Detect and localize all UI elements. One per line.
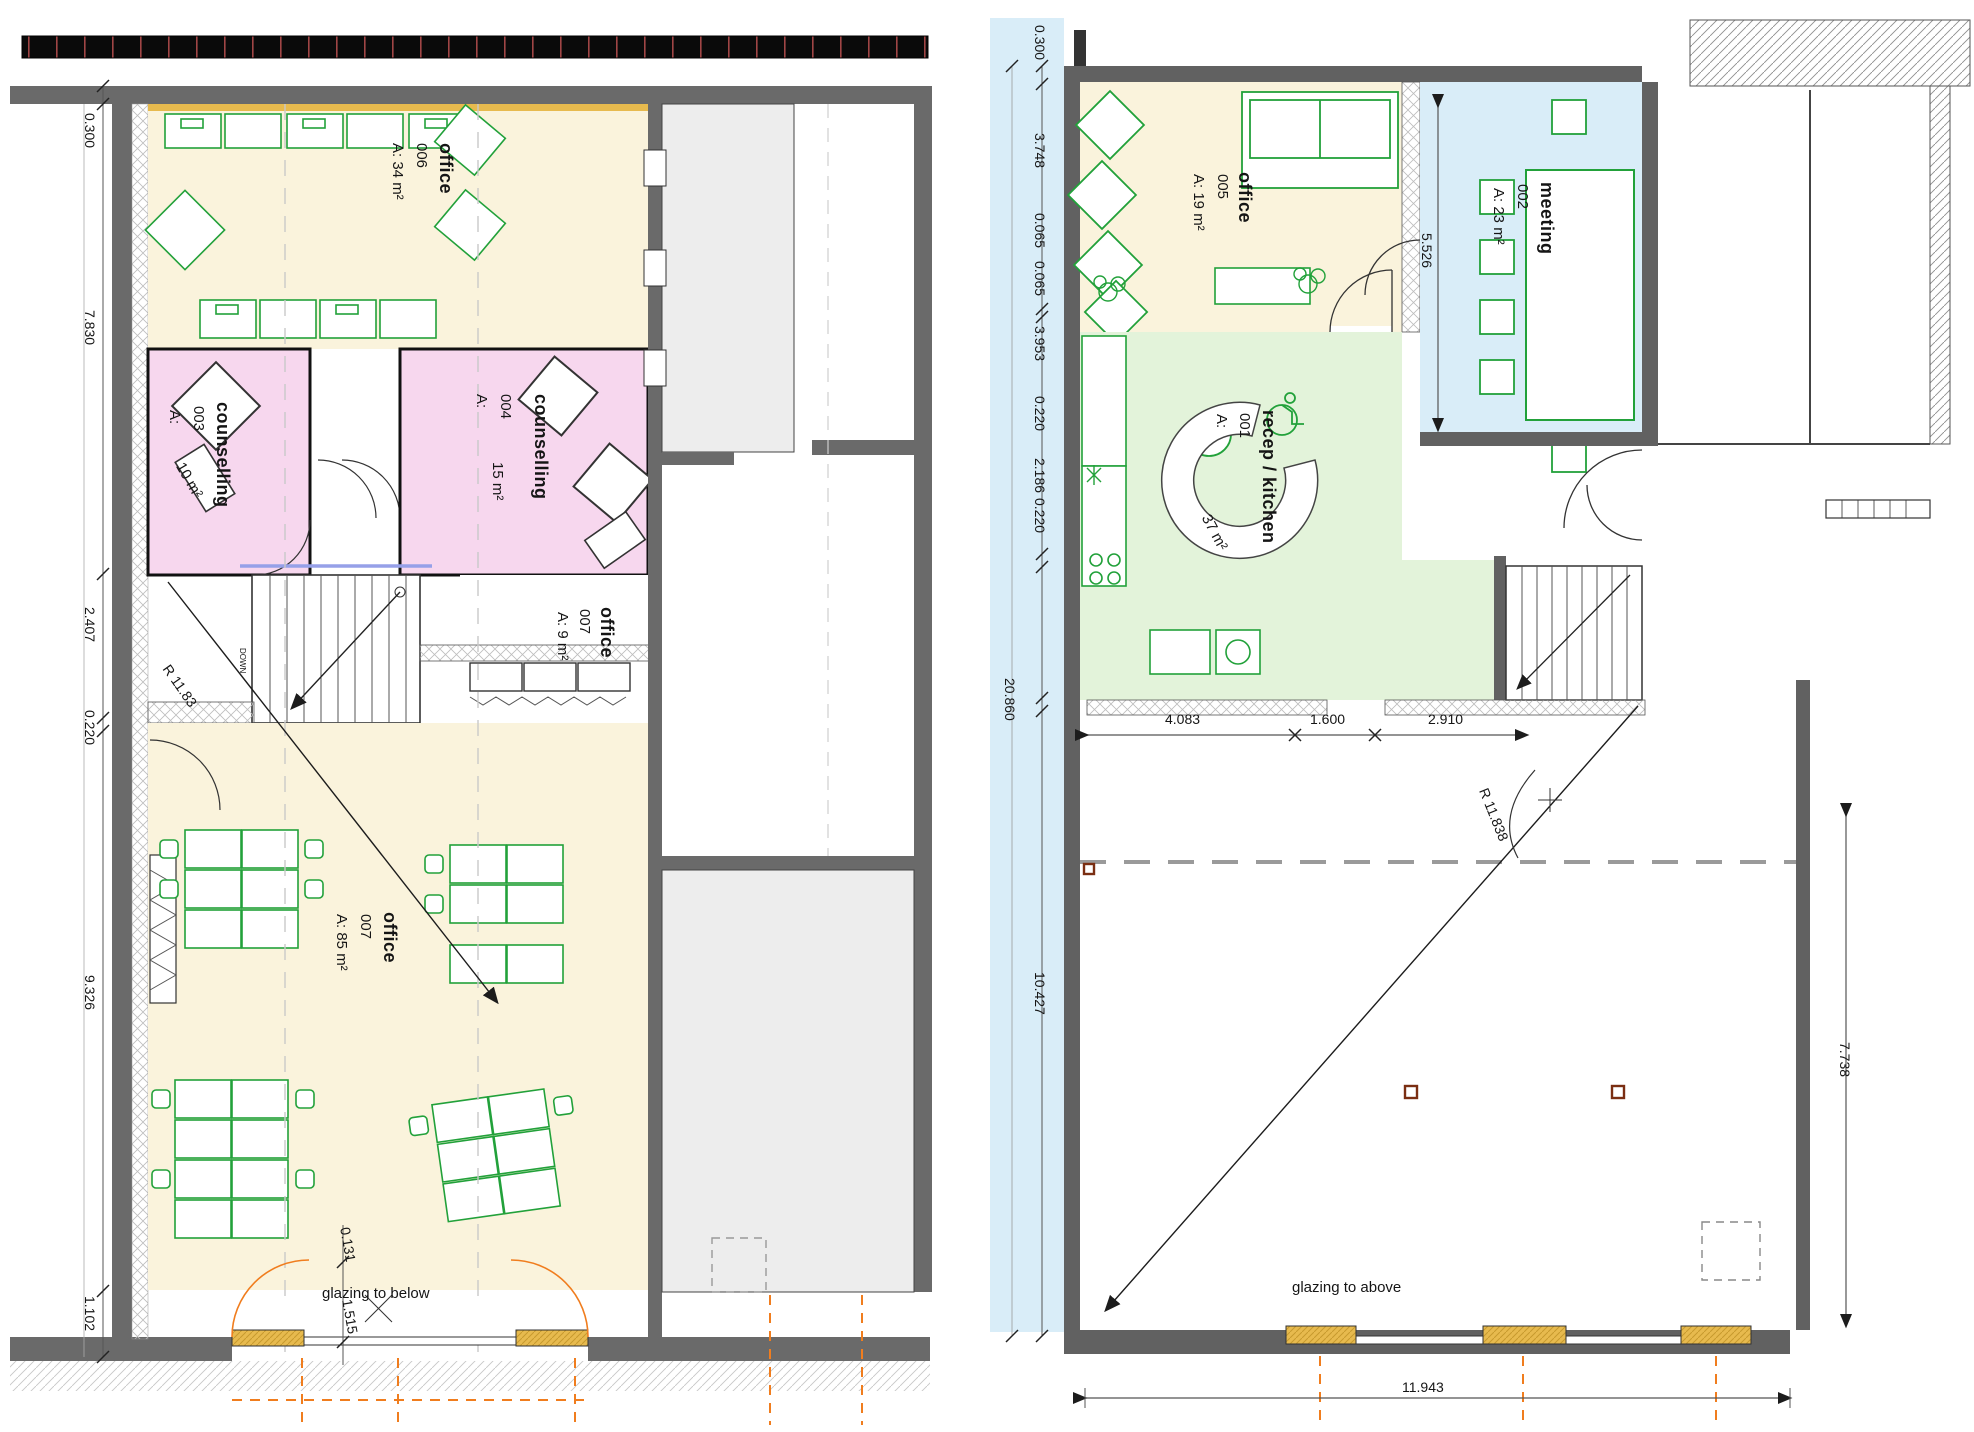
o5-name-label: office <box>1236 172 1254 223</box>
room-counselling-004 <box>400 349 652 575</box>
room-meeting-002 <box>1365 82 1658 472</box>
o6-num-label: 006 <box>414 143 429 168</box>
dim-0065b-label: 0.065 <box>1033 261 1047 296</box>
lower-floor-drawing <box>990 0 1974 1432</box>
m2-area-label: A: 23 m² <box>1491 188 1506 245</box>
bottom-glazing <box>1286 1326 1751 1428</box>
c3-name-label: counselling <box>214 402 232 508</box>
o7-num-label: 007 <box>358 914 373 939</box>
o6-area-label: A: 34 m² <box>390 143 405 200</box>
dim-3953-label: 3.953 <box>1033 326 1047 361</box>
o5-num-label: 005 <box>1215 174 1230 199</box>
c3-a-label: A: <box>167 410 182 424</box>
dim-4083-label: 4.083 <box>1165 712 1200 726</box>
dim-0300-label: 0.300 <box>1033 25 1047 60</box>
dim-0220b-label: 0.220 <box>1033 498 1047 533</box>
rk-a-label: A: <box>1214 414 1229 428</box>
rk-name-label: recep / kitchen <box>1260 410 1278 544</box>
upper-floor-drawing <box>0 0 985 1432</box>
o5-area-label: A: 19 m² <box>1191 174 1206 231</box>
o7-area-label: A: 85 m² <box>334 914 349 971</box>
c4-area-label: 15 m² <box>490 462 505 500</box>
o7s-name-label: office <box>598 607 616 658</box>
glazing-label: glazing to below <box>322 1286 430 1301</box>
dim-0220a-label: 0.220 <box>1033 396 1047 431</box>
dim-20860-label: 20.860 <box>1003 678 1017 721</box>
c4-a-label: A: <box>474 394 489 408</box>
m2-name-label: meeting <box>1538 182 1556 255</box>
c3-num-label: 003 <box>191 406 206 431</box>
down-label: DOWN <box>238 648 246 673</box>
dim-9326-label: 9.326 <box>83 975 97 1010</box>
section-band-top <box>22 36 928 58</box>
dim-2186-label: 2.186 <box>1033 458 1047 493</box>
dim-1600-label: 1.600 <box>1310 712 1345 726</box>
dim-2910-label: 2.910 <box>1428 712 1463 726</box>
rk-num-label: 001 <box>1237 413 1252 438</box>
dim-0220-label: 0.220 <box>83 710 97 745</box>
void-area <box>1080 706 1796 1310</box>
dim-5526-label: 5.526 <box>1420 233 1434 268</box>
stairs <box>240 566 432 723</box>
dim-11943-label: 11.943 <box>1402 1380 1444 1394</box>
o7-name-label: office <box>381 912 399 963</box>
c4-name-label: counselling <box>532 394 550 500</box>
o6-name-label: office <box>437 143 455 194</box>
dim-0065a-label: 0.065 <box>1033 213 1047 248</box>
o7s-num-label: 007 <box>577 609 592 634</box>
upper-floor-plan: 0.3007.8302.4070.2209.3261.1020.1311.515… <box>0 0 985 1432</box>
dim-0300-label: 0.300 <box>83 113 97 148</box>
dim-10427-label: 10.427 <box>1033 972 1047 1015</box>
m2-num-label: 002 <box>1515 184 1530 209</box>
o7s-area-label: A: 9 m² <box>555 612 570 660</box>
c4-num-label: 004 <box>498 394 513 419</box>
dim-2407-label: 2.407 <box>83 607 97 642</box>
dim-3748-label: 3.748 <box>1033 133 1047 168</box>
right-side-rooms <box>1658 90 1930 518</box>
lobby-doors <box>318 460 400 518</box>
glazing-label: glazing to above <box>1292 1280 1401 1295</box>
lower-floor-plan: 0.3003.7480.0650.0653.9530.2202.1860.220… <box>990 0 1974 1432</box>
dim-1102-label: 1.102 <box>83 1296 97 1331</box>
floor-plan-canvas: 0.3007.8302.4070.2209.3261.1020.1311.515… <box>0 0 1974 1432</box>
room-office-006 <box>145 104 648 349</box>
right-wing <box>644 104 914 1338</box>
dim-7830-label: 7.830 <box>83 310 97 345</box>
room-office-007 <box>148 723 648 1290</box>
dim-7738-label: 7.738 <box>1838 1042 1852 1077</box>
